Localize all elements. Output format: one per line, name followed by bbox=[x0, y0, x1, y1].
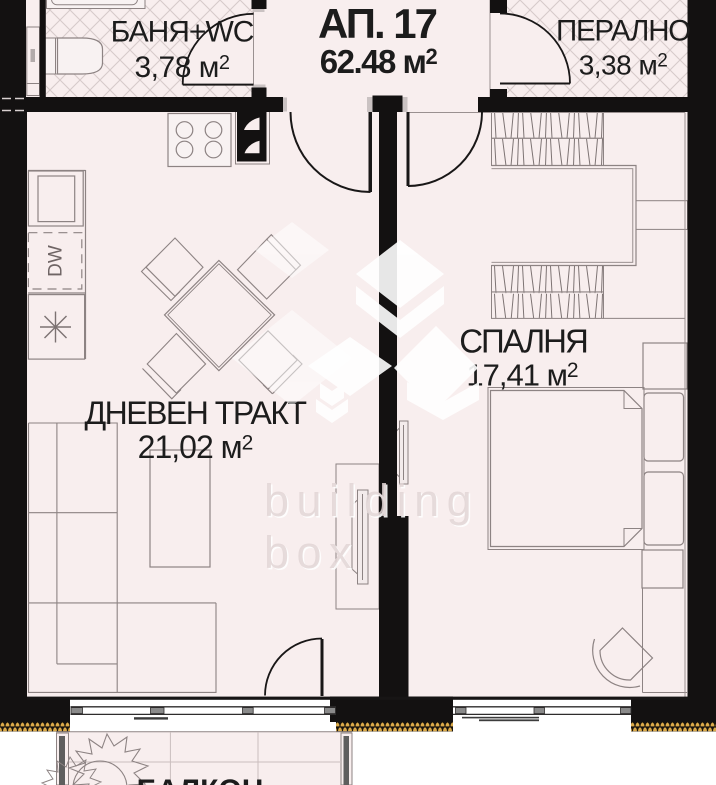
svg-text:3,78 м2: 3,78 м2 bbox=[135, 51, 230, 84]
svg-text:ПЕРАЛНО: ПЕРАЛНО bbox=[556, 15, 690, 48]
svg-text:62.48 м2: 62.48 м2 bbox=[320, 43, 438, 80]
svg-text:БАНЯ+WC: БАНЯ+WC bbox=[111, 16, 254, 49]
svg-text:DW: DW bbox=[46, 245, 67, 277]
svg-text:СПАЛНЯ: СПАЛНЯ bbox=[459, 323, 587, 360]
svg-text:ДНЕВЕН ТРАКТ: ДНЕВЕН ТРАКТ bbox=[84, 395, 306, 431]
svg-text:АП. 17: АП. 17 bbox=[318, 0, 437, 47]
svg-text:box: box bbox=[264, 527, 359, 578]
svg-text:17,41 м2: 17,41 м2 bbox=[466, 358, 578, 393]
svg-text:building: building bbox=[264, 475, 479, 526]
svg-text:БАЛКОН: БАЛКОН bbox=[137, 774, 264, 785]
svg-text:21,02 м2: 21,02 м2 bbox=[138, 429, 253, 465]
svg-text:3,38 м2: 3,38 м2 bbox=[579, 50, 668, 81]
